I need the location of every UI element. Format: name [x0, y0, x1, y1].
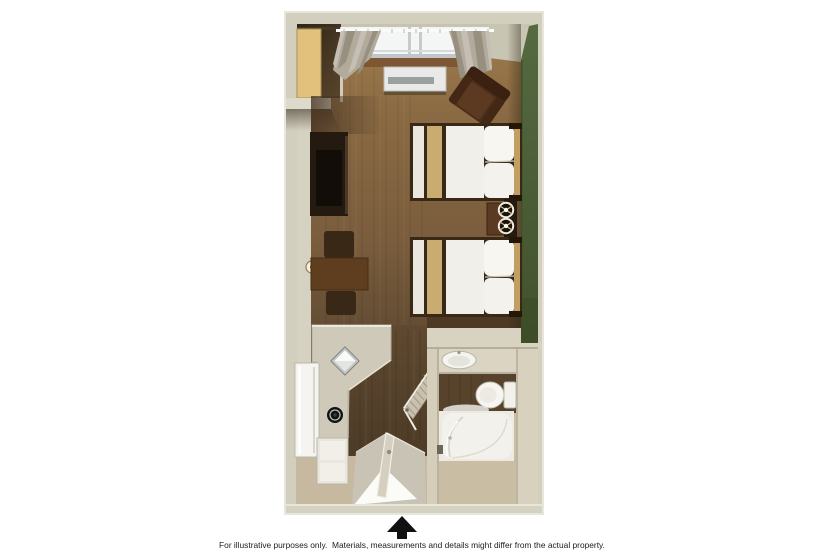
svg-text:For illustrative purposes only: For illustrative purposes only. Material…	[219, 540, 605, 550]
